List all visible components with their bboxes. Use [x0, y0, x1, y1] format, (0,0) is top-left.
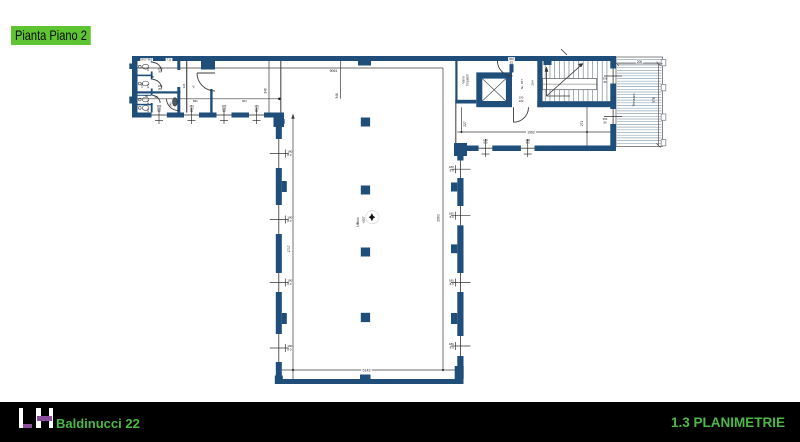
svg-text:8.0: 8.0: [484, 141, 488, 145]
svg-text:Ufficio: Ufficio: [356, 217, 360, 226]
svg-text:Nr. 327: Nr. 327: [520, 79, 524, 89]
svg-text:Terrazzo: Terrazzo: [632, 93, 636, 106]
svg-text:+5: +5: [191, 85, 195, 89]
svg-text:8.0: 8.0: [287, 153, 292, 157]
svg-text:100: 100: [519, 99, 524, 103]
svg-text:346: 346: [182, 83, 186, 88]
svg-text:240: 240: [169, 102, 173, 107]
svg-text:8.0: 8.0: [450, 345, 455, 349]
svg-text:346: 346: [263, 88, 267, 94]
svg-text:W.0: W.0: [148, 58, 153, 62]
svg-text:8.0: 8.0: [287, 219, 292, 223]
svg-text:8.0: 8.0: [526, 141, 530, 145]
svg-text:Impianti: Impianti: [466, 74, 470, 86]
svg-text:8.0: 8.0: [287, 347, 292, 351]
svg-text:711: 711: [167, 58, 172, 62]
svg-text:346: 346: [335, 93, 339, 99]
svg-text:8.0: 8.0: [450, 282, 455, 286]
svg-text:254: 254: [531, 80, 535, 85]
svg-text:200: 200: [637, 60, 643, 64]
svg-text:5143: 5143: [363, 369, 371, 373]
svg-text:8.0: 8.0: [450, 169, 455, 173]
svg-text:891: 891: [193, 99, 198, 103]
svg-text:1717: 1717: [287, 245, 291, 253]
svg-text:W.0: W.0: [141, 58, 146, 62]
svg-text:178: 178: [140, 83, 144, 88]
svg-text:9061: 9061: [330, 69, 338, 73]
svg-text:90: 90: [151, 75, 155, 79]
svg-text:80: 80: [603, 80, 607, 84]
svg-text:227: 227: [463, 121, 467, 127]
svg-text:576: 576: [652, 97, 656, 103]
svg-text:90: 90: [154, 95, 158, 99]
svg-text:90: 90: [145, 94, 149, 98]
svg-text:80: 80: [158, 87, 162, 91]
svg-text:8.0: 8.0: [450, 215, 455, 219]
svg-text:1992: 1992: [527, 131, 535, 135]
svg-text:2963: 2963: [437, 214, 441, 222]
svg-text:+557: +557: [362, 216, 366, 223]
svg-text:80: 80: [158, 70, 162, 74]
svg-text:80: 80: [603, 120, 607, 124]
svg-text:E2: E2: [510, 60, 514, 64]
svg-text:901: 901: [242, 99, 247, 103]
svg-text:8.0: 8.0: [287, 282, 292, 286]
svg-text:271: 271: [580, 121, 584, 127]
